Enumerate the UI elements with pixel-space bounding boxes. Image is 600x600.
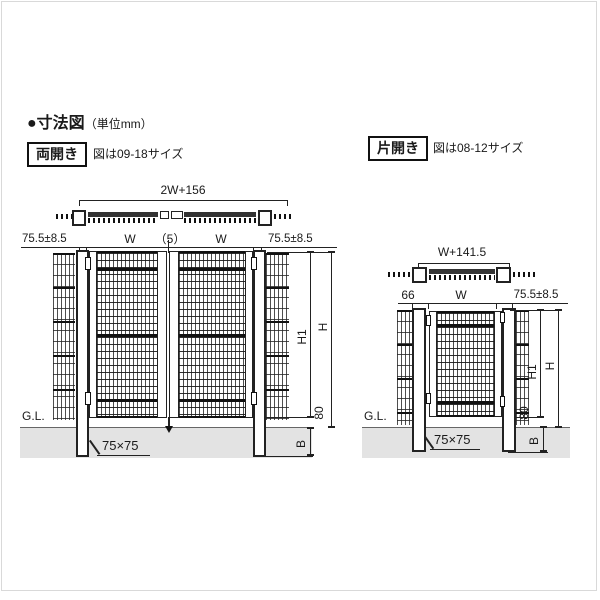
total-height-dim-label: H	[316, 323, 330, 332]
mesh-rail	[97, 268, 157, 271]
plan-post	[258, 210, 272, 226]
dim-row-line	[21, 247, 337, 248]
double-swing-label: 両開き	[27, 142, 87, 167]
plan-center-latch	[160, 211, 169, 219]
page-title-text: 寸法図	[37, 115, 85, 132]
single-swing-label: 片開き	[368, 136, 428, 161]
plan-center-latch	[171, 211, 183, 219]
hinge	[426, 393, 431, 404]
gate-post	[412, 308, 426, 452]
mesh-rail	[179, 399, 245, 402]
extension-line	[267, 252, 332, 253]
double-swing-size-note: 図は09-18サイズ	[93, 147, 183, 161]
total-height-dim-label: H	[543, 362, 557, 371]
hinge	[85, 257, 91, 270]
plan-fence-stub	[56, 214, 72, 219]
plan-gate-leaf-mesh	[184, 218, 256, 223]
leaf-width-dim-label: W	[455, 288, 466, 302]
embed-depth-dim-line	[543, 427, 544, 452]
hinge	[251, 392, 257, 405]
dim-tick	[428, 303, 429, 309]
plan-gate-leaf	[184, 212, 256, 217]
latch	[500, 312, 505, 323]
dim-tick	[287, 200, 288, 206]
dim-end-tick	[307, 251, 314, 253]
gate-leaf-mesh	[437, 311, 494, 417]
leaf-meeting-stile	[157, 251, 167, 418]
fence-mesh-panel	[266, 253, 289, 420]
leaf-meeting-stile	[169, 251, 179, 418]
right-offset-dim-label: 75.5±8.5	[268, 232, 313, 246]
single-swing-size-note: 図は08-12サイズ	[433, 141, 523, 155]
drop-rod-foot	[165, 426, 173, 433]
plan-fence-stub	[388, 272, 411, 277]
plan-fence-stub	[513, 272, 537, 277]
latch	[500, 396, 505, 407]
bottom-gap-dim-label: 80	[312, 406, 326, 419]
hinge	[85, 392, 91, 405]
overall-width-dim-label: 2W+156	[160, 183, 205, 197]
dim-end-tick	[537, 309, 544, 311]
dim-end-tick	[328, 426, 335, 428]
dim-tick	[79, 200, 80, 206]
right-offset-dim-label: 75.5±8.5	[514, 288, 559, 302]
hinge-offset-dim-label: 66	[401, 288, 414, 302]
mesh-rail	[437, 401, 494, 404]
dim-end-tick	[328, 251, 335, 253]
plan-gate-leaf-mesh	[429, 275, 495, 280]
plan-post	[72, 210, 86, 226]
gate-leaf-mesh	[97, 251, 157, 418]
ground-level-label: G.L.	[364, 409, 387, 423]
overall-width-dim-label: W+141.5	[438, 245, 486, 259]
extension-line	[510, 310, 559, 311]
h1-dim-line	[540, 310, 541, 417]
extension-line	[266, 417, 312, 418]
dim-end-tick	[307, 427, 314, 429]
fence-mesh-panel	[53, 253, 75, 420]
hinge	[426, 315, 431, 326]
plan-fence-stub	[274, 214, 292, 219]
h-dim-line	[558, 310, 559, 427]
plan-gate-leaf	[429, 269, 495, 274]
dimension-drawing-page: ●寸法図（単位mm） 両開き 図は09-18サイズ 片開き 図は08-12サイズ…	[0, 0, 600, 600]
dim-end-tick	[555, 426, 562, 428]
left-offset-dim-label: 75.5±8.5	[22, 232, 67, 246]
dim-end-tick	[540, 426, 547, 428]
gate-post	[253, 250, 266, 457]
plan-gate-leaf-mesh	[88, 218, 158, 223]
dim-row-line	[398, 303, 568, 304]
ground-level-label: G.L.	[22, 409, 45, 423]
bottom-gap-dim-label: 80	[517, 406, 531, 419]
overall-width-dim-line	[418, 263, 510, 264]
mesh-rail	[179, 334, 245, 337]
extension-line	[265, 456, 313, 457]
fence-mesh-panel	[397, 310, 413, 425]
embed-depth-dim-label: B	[527, 437, 541, 445]
gate-leaf-mesh	[179, 251, 245, 418]
dim-end-tick	[555, 309, 562, 311]
plan-post	[412, 267, 427, 283]
post-size-label: 75×75	[434, 433, 471, 447]
extension-line	[508, 452, 548, 453]
mesh-rail	[437, 324, 494, 327]
h-dim-line	[331, 252, 332, 427]
center-gap-dim-label: （5）	[155, 232, 186, 246]
overall-width-dim-line	[79, 200, 288, 201]
dim-tick	[496, 303, 497, 309]
leaf-width-dim-label: W	[124, 232, 135, 246]
hinge	[251, 257, 257, 270]
gate-post	[502, 308, 516, 452]
page-title-unit: （単位mm）	[85, 117, 153, 131]
mesh-rail	[97, 334, 157, 337]
dim-end-tick	[537, 416, 544, 418]
mesh-rail	[179, 268, 245, 271]
post-size-label: 75×75	[102, 439, 139, 453]
plan-gate-leaf	[88, 212, 158, 217]
leader-underline	[430, 449, 480, 450]
panel-height-dim-label: H1	[525, 364, 539, 379]
plan-post	[496, 267, 511, 283]
h1-dim-line	[310, 252, 311, 417]
panel-height-dim-label: H1	[295, 329, 309, 344]
mesh-rail	[97, 399, 157, 402]
leader-underline	[97, 455, 150, 456]
page-title: ●寸法図（単位mm）	[27, 117, 153, 131]
gate-post	[76, 250, 89, 457]
section-bullet-icon: ●	[27, 115, 37, 132]
leaf-width-dim-label: W	[215, 232, 226, 246]
embed-depth-dim-label: B	[294, 440, 308, 448]
embed-depth-dim-line	[310, 428, 311, 456]
